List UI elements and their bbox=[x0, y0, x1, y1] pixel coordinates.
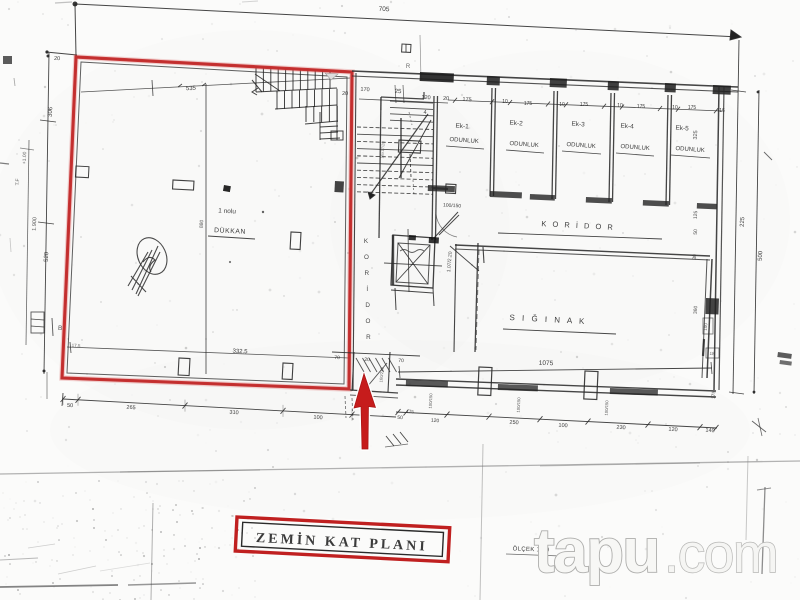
svg-text:1.900: 1.900 bbox=[32, 217, 39, 231]
svg-text:50: 50 bbox=[693, 229, 699, 235]
svg-text:500: 500 bbox=[758, 250, 765, 261]
svg-text:306: 306 bbox=[48, 106, 55, 117]
svg-text:O: O bbox=[366, 318, 371, 325]
svg-text:120: 120 bbox=[431, 418, 440, 424]
svg-text:70: 70 bbox=[398, 358, 404, 364]
svg-text:265: 265 bbox=[126, 405, 135, 411]
svg-text:O: O bbox=[364, 254, 369, 261]
svg-text:120: 120 bbox=[421, 95, 430, 101]
svg-text:100/150: 100/150 bbox=[516, 397, 522, 413]
svg-text:225: 225 bbox=[740, 216, 747, 227]
svg-text:Ek-4: Ek-4 bbox=[620, 123, 634, 131]
svg-text:20: 20 bbox=[443, 96, 449, 102]
svg-text:50: 50 bbox=[67, 403, 73, 409]
svg-text:100: 100 bbox=[703, 323, 708, 331]
svg-text:İ: İ bbox=[366, 284, 368, 293]
svg-text:100/150: 100/150 bbox=[428, 393, 434, 409]
svg-text:100/150: 100/150 bbox=[604, 400, 610, 416]
svg-text:10: 10 bbox=[502, 99, 508, 105]
svg-text:100: 100 bbox=[558, 423, 567, 429]
svg-text:175: 175 bbox=[406, 409, 414, 414]
svg-text:70: 70 bbox=[334, 355, 340, 361]
svg-text:Ek-3: Ek-3 bbox=[571, 121, 585, 129]
svg-text:4: 4 bbox=[423, 110, 426, 116]
svg-text:R: R bbox=[365, 270, 370, 277]
svg-text:20: 20 bbox=[342, 91, 348, 97]
svg-text:Ek-2: Ek-2 bbox=[509, 120, 523, 128]
svg-text:120: 120 bbox=[668, 427, 677, 433]
svg-text:tapu: tapu bbox=[534, 517, 659, 586]
svg-text:DÜKKAN: DÜKKAN bbox=[214, 226, 246, 236]
svg-text:R: R bbox=[366, 334, 371, 341]
svg-text:100: 100 bbox=[313, 415, 322, 421]
svg-text:Ek-1: Ek-1 bbox=[455, 123, 469, 131]
svg-text:D: D bbox=[365, 302, 370, 309]
svg-text:.com: .com bbox=[664, 522, 777, 584]
svg-text:Ek-5: Ek-5 bbox=[675, 125, 689, 133]
svg-text:705: 705 bbox=[378, 6, 390, 14]
svg-text:10: 10 bbox=[672, 105, 678, 111]
svg-text:175: 175 bbox=[462, 97, 471, 103]
svg-text:T.F: T.F bbox=[15, 178, 21, 185]
svg-text:R: R bbox=[406, 64, 411, 70]
svg-text:520: 520 bbox=[44, 251, 51, 262]
svg-text:100/150: 100/150 bbox=[443, 203, 462, 210]
svg-text:50: 50 bbox=[397, 415, 403, 421]
svg-text:10: 10 bbox=[559, 102, 565, 108]
svg-text:140: 140 bbox=[705, 428, 714, 434]
svg-text:30: 30 bbox=[692, 254, 698, 260]
svg-text:535: 535 bbox=[186, 86, 197, 93]
svg-text:175: 175 bbox=[580, 102, 589, 108]
svg-text:18: 18 bbox=[709, 351, 715, 356]
svg-text:175: 175 bbox=[524, 101, 533, 107]
svg-text:360: 360 bbox=[693, 305, 699, 314]
svg-text:1 nolu: 1 nolu bbox=[218, 208, 236, 216]
svg-text:175: 175 bbox=[711, 390, 717, 399]
svg-text:332.5: 332.5 bbox=[232, 349, 248, 356]
svg-text:125: 125 bbox=[693, 210, 699, 219]
svg-text:175: 175 bbox=[688, 105, 697, 111]
svg-text:+1.00: +1.00 bbox=[22, 151, 29, 164]
svg-text:250: 250 bbox=[509, 420, 518, 426]
svg-text:880: 880 bbox=[199, 219, 205, 228]
svg-text:20: 20 bbox=[54, 56, 60, 62]
svg-text:230: 230 bbox=[616, 425, 625, 431]
svg-text:325: 325 bbox=[693, 130, 699, 139]
svg-text:1075: 1075 bbox=[539, 360, 554, 367]
svg-text:10: 10 bbox=[617, 103, 623, 109]
svg-text:175: 175 bbox=[637, 104, 646, 110]
svg-text:170: 170 bbox=[360, 87, 369, 93]
svg-text:310: 310 bbox=[229, 410, 238, 416]
svg-text:17.5: 17.5 bbox=[72, 343, 81, 348]
